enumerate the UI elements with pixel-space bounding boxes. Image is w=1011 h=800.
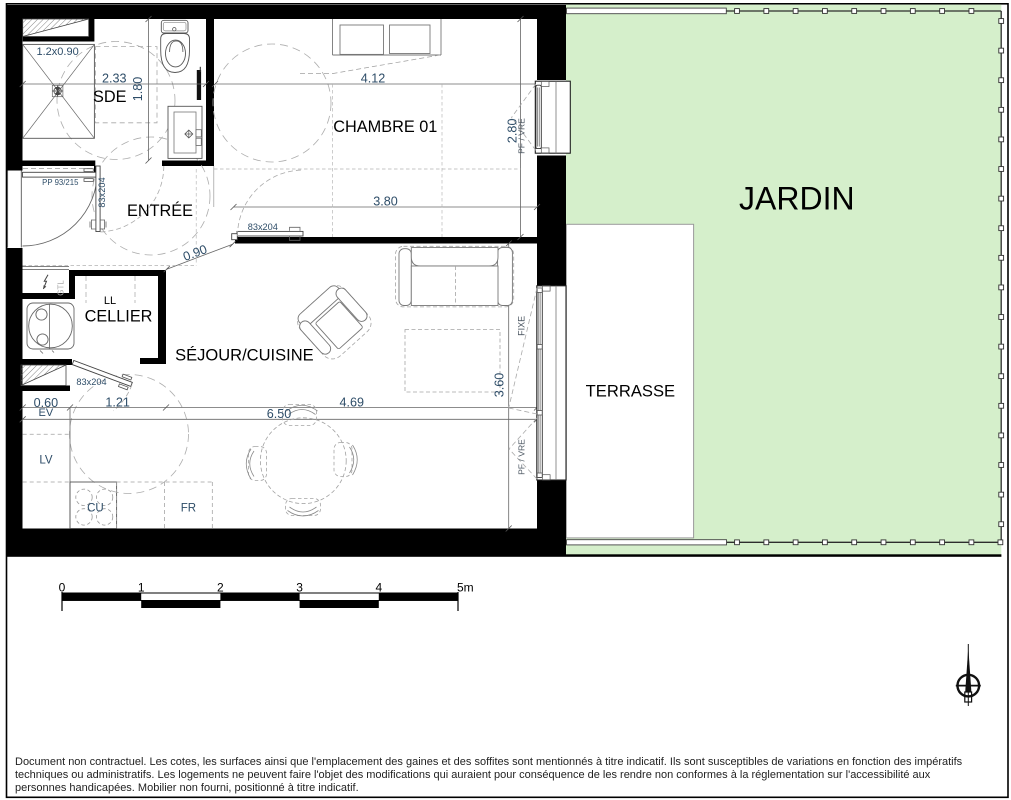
svg-text:Document non contractuel. Les: Document non contractuel. Les cotes, les… (15, 756, 963, 768)
svg-text:CELLIER: CELLIER (85, 308, 153, 326)
svg-text:3.80: 3.80 (373, 195, 398, 209)
svg-text:2: 2 (217, 581, 224, 595)
svg-text:83x204: 83x204 (97, 177, 107, 207)
svg-text:83x204: 83x204 (76, 377, 106, 387)
svg-text:SDE: SDE (93, 88, 127, 106)
svg-text:ENTRÉE: ENTRÉE (127, 201, 193, 220)
svg-text:1: 1 (138, 581, 145, 595)
svg-text:2.33: 2.33 (102, 72, 127, 86)
svg-text:PF / VRE: PF / VRE (517, 118, 527, 154)
svg-text:PF / VRE: PF / VRE (517, 439, 527, 475)
svg-text:CU: CU (87, 502, 104, 514)
svg-text:3: 3 (296, 581, 303, 595)
svg-text:FR: FR (181, 502, 196, 514)
svg-text:1.2x0.90: 1.2x0.90 (36, 46, 78, 58)
svg-text:4.69: 4.69 (339, 395, 364, 409)
svg-text:0: 0 (59, 581, 66, 595)
svg-text:GTL: GTL (57, 280, 66, 296)
svg-text:LV: LV (39, 455, 53, 467)
svg-text:4.12: 4.12 (361, 72, 386, 86)
svg-text:6.50: 6.50 (267, 407, 292, 421)
svg-text:FIXE: FIXE (517, 316, 527, 336)
svg-text:5m: 5m (457, 581, 474, 595)
svg-text:LL: LL (104, 295, 116, 307)
svg-text:1.80: 1.80 (131, 77, 145, 102)
svg-text:SÉJOUR/CUISINE: SÉJOUR/CUISINE (175, 345, 313, 364)
svg-text:4: 4 (375, 581, 382, 595)
svg-text:TERRASSE: TERRASSE (586, 382, 675, 401)
svg-text:PP 93/215: PP 93/215 (42, 178, 79, 187)
svg-text:1.21: 1.21 (105, 395, 130, 409)
svg-text:JARDIN: JARDIN (739, 181, 855, 217)
svg-text:personnes handicapées. Mobilie: personnes handicapées. Mobilier non four… (15, 782, 359, 794)
svg-text:CHAMBRE 01: CHAMBRE 01 (333, 118, 437, 136)
svg-text:83x204: 83x204 (248, 222, 278, 232)
svg-text:EV: EV (39, 407, 54, 419)
svg-text:techniques ou administratifs.: techniques ou administratifs. Les logeme… (15, 769, 931, 781)
svg-text:3.60: 3.60 (492, 373, 506, 398)
